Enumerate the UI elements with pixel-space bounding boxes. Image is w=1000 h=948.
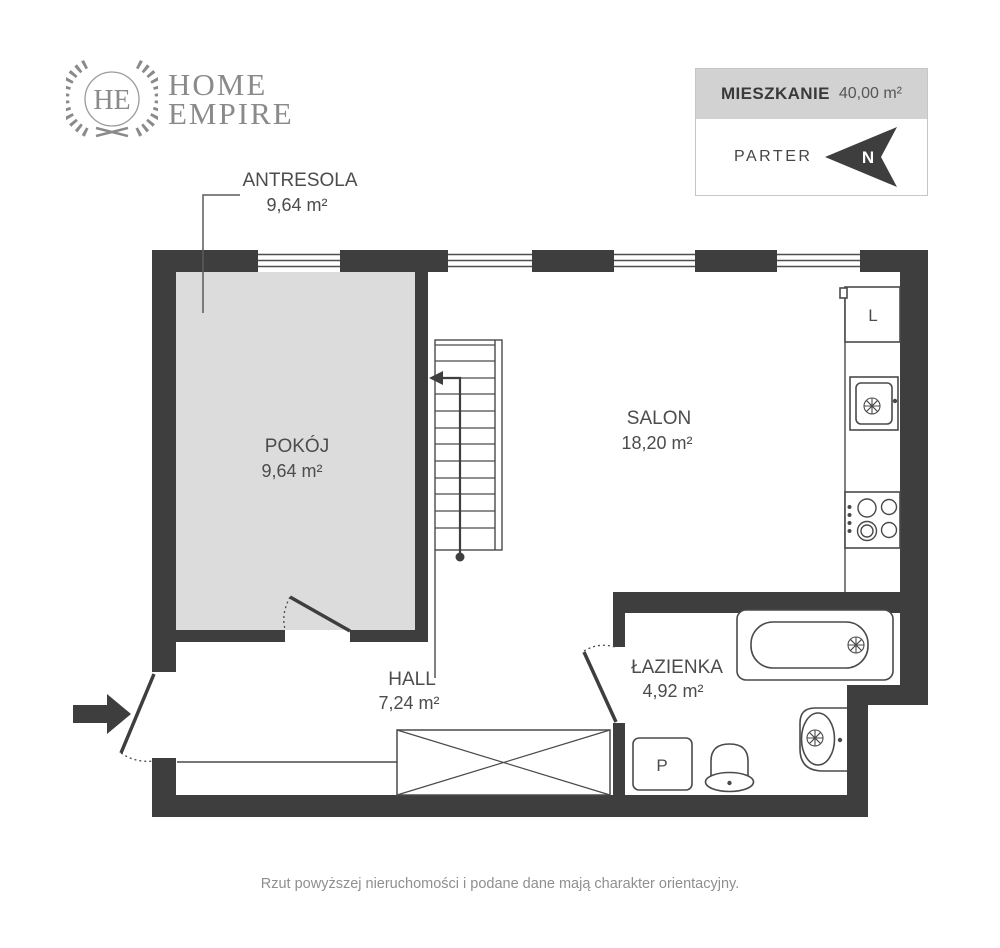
svg-text:9,64 m²: 9,64 m²: [261, 461, 322, 481]
fridge-icon: L: [840, 287, 900, 342]
entry-arrow-icon: [73, 694, 131, 734]
room-label-salon: SALON 18,20 m²: [621, 408, 692, 453]
svg-text:HALL: HALL: [388, 669, 436, 690]
svg-text:4,92 m²: 4,92 m²: [642, 681, 703, 701]
svg-text:ŁAZIENKA: ŁAZIENKA: [631, 657, 723, 678]
kitchen-sink-icon: [850, 377, 898, 430]
stair-direction-arrow-icon: [429, 371, 443, 385]
washing-machine-icon: P: [633, 738, 692, 790]
svg-text:7,24 m²: 7,24 m²: [378, 693, 439, 713]
floor-plan-page: HE HOME EMPIRE MIESZKANIE 40,00 m² PARTE…: [0, 0, 1000, 948]
washbasin-icon: [800, 708, 847, 771]
wardrobe-icon: [397, 730, 610, 795]
bathroom-door-icon: [584, 645, 616, 722]
svg-text:POKÓJ: POKÓJ: [265, 435, 329, 457]
washer-letter: P: [656, 756, 667, 775]
floor-plan-drawing: L: [0, 0, 1000, 948]
bathtub-icon: [737, 610, 893, 680]
svg-text:SALON: SALON: [627, 408, 691, 429]
toilet-icon: [706, 744, 754, 792]
svg-text:ANTRESOLA: ANTRESOLA: [242, 170, 357, 191]
room-label-antresola: ANTRESOLA 9,64 m²: [242, 170, 357, 215]
svg-text:18,20 m²: 18,20 m²: [621, 433, 692, 453]
stove-icon: [845, 492, 900, 548]
disclaimer-text: Rzut powyższej nieruchomości i podane da…: [0, 876, 1000, 892]
fridge-letter: L: [868, 306, 877, 325]
room-label-lazienka: ŁAZIENKA 4,92 m²: [631, 657, 723, 701]
staircase-icon: [429, 340, 502, 678]
room-label-hall: HALL 7,24 m²: [378, 669, 439, 713]
svg-text:9,64 m²: 9,64 m²: [266, 195, 327, 215]
